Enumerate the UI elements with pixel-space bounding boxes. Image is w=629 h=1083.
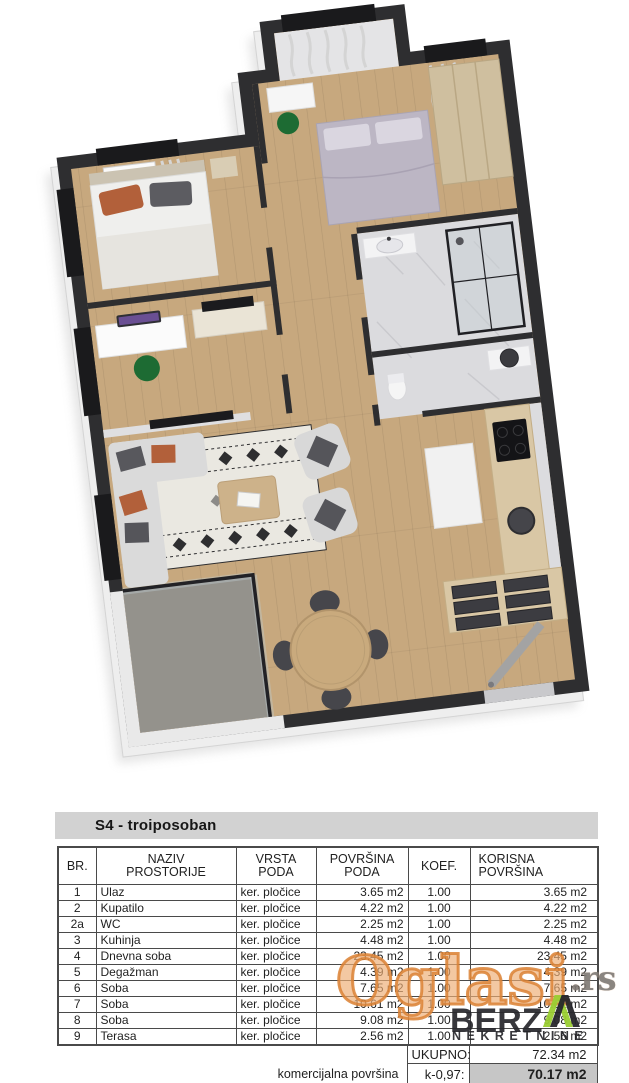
komercijalna-value: 70.17 m2 bbox=[469, 1064, 597, 1083]
cell-vrsta: ker. pločice bbox=[236, 1029, 316, 1046]
cell-korisna: 10.61 m2 bbox=[470, 997, 598, 1013]
cell-br: 3 bbox=[58, 933, 96, 949]
pillow-rust bbox=[151, 445, 175, 463]
header-vrsta: VRSTA PODA bbox=[236, 847, 316, 885]
cell-povrsina: 7.65 m2 bbox=[316, 981, 408, 997]
header-naziv: NAZIV PROSTORIJE bbox=[96, 847, 236, 885]
apartment bbox=[30, 0, 592, 764]
room-table: BR. NAZIV PROSTORIJE VRSTA PODA POVRŠINA… bbox=[57, 846, 599, 1046]
ukupno-label: UKUPNO: bbox=[407, 1046, 469, 1064]
cell-koef: 1.00 bbox=[408, 965, 470, 981]
table-row: 6 Soba ker. pločice 7.65 m2 1.00 7.65 m2 bbox=[58, 981, 598, 997]
table-row: 2a WC ker. pločice 2.25 m2 1.00 2.25 m2 bbox=[58, 917, 598, 933]
cell-koef: 1.00 bbox=[408, 1029, 470, 1046]
table-row: 2 Kupatilo ker. pločice 4.22 m2 1.00 4.2… bbox=[58, 901, 598, 917]
terrace-floor bbox=[123, 575, 270, 733]
cell-korisna: 4.39 m2 bbox=[470, 965, 598, 981]
cell-povrsina: 10.61 m2 bbox=[316, 997, 408, 1013]
cell-vrsta: ker. pločice bbox=[236, 917, 316, 933]
totals-table: UKUPNO: 72.34 m2 komercijalna površina k… bbox=[57, 1046, 598, 1083]
cell-br: 9 bbox=[58, 1029, 96, 1046]
cell-naziv: WC bbox=[96, 917, 236, 933]
komercijalna-label: komercijalna površina bbox=[57, 1064, 407, 1083]
cell-br: 1 bbox=[58, 885, 96, 901]
cell-povrsina: 4.48 m2 bbox=[316, 933, 408, 949]
cell-naziv: Soba bbox=[96, 1013, 236, 1029]
table-row: 1 Ulaz ker. pločice 3.65 m2 1.00 3.65 m2 bbox=[58, 885, 598, 901]
pillow-gray bbox=[125, 522, 150, 543]
table-row: 3 Kuhinja ker. pločice 4.48 m2 1.00 4.48… bbox=[58, 933, 598, 949]
cell-povrsina: 23.45 m2 bbox=[316, 949, 408, 965]
cell-naziv: Dnevna soba bbox=[96, 949, 236, 965]
cell-naziv: Ulaz bbox=[96, 885, 236, 901]
book bbox=[237, 492, 260, 508]
cell-naziv: Degažman bbox=[96, 965, 236, 981]
table-row: 5 Degažman ker. pločice 4.39 m2 1.00 4.3… bbox=[58, 965, 598, 981]
cell-naziv: Kuhinja bbox=[96, 933, 236, 949]
room-table-section: BR. NAZIV PROSTORIJE VRSTA PODA POVRŠINA… bbox=[57, 846, 597, 1083]
header-koef: KOEF. bbox=[408, 847, 470, 885]
cell-povrsina: 9.08 m2 bbox=[316, 1013, 408, 1029]
ukupno-row: UKUPNO: 72.34 m2 bbox=[57, 1046, 597, 1064]
koef-label: k-0,97: bbox=[407, 1064, 469, 1083]
table-row: 7 Soba ker. pločice 10.61 m2 1.00 10.61 … bbox=[58, 997, 598, 1013]
unit-title: S4 - troiposoban bbox=[55, 812, 598, 839]
kitchen-cabinet-white bbox=[425, 443, 482, 528]
cell-naziv: Kupatilo bbox=[96, 901, 236, 917]
cell-br: 7 bbox=[58, 997, 96, 1013]
cell-vrsta: ker. pločice bbox=[236, 997, 316, 1013]
cell-korisna: 3.65 m2 bbox=[470, 885, 598, 901]
cell-br: 2 bbox=[58, 901, 96, 917]
cell-koef: 1.00 bbox=[408, 917, 470, 933]
cell-koef: 1.00 bbox=[408, 1013, 470, 1029]
cell-vrsta: ker. pločice bbox=[236, 965, 316, 981]
ukupno-value: 72.34 m2 bbox=[469, 1046, 597, 1064]
cell-korisna: 23.45 m2 bbox=[470, 949, 598, 965]
cell-naziv: Soba bbox=[96, 981, 236, 997]
cell-vrsta: ker. pločice bbox=[236, 885, 316, 901]
cell-korisna: 2.25 m2 bbox=[470, 917, 598, 933]
cell-koef: 1.00 bbox=[408, 997, 470, 1013]
table-row: 8 Soba ker. pločice 9.08 m2 1.00 9.08 m2 bbox=[58, 1013, 598, 1029]
cell-br: 4 bbox=[58, 949, 96, 965]
pillow-gray bbox=[149, 181, 192, 207]
header-povrsina: POVRŠINA PODA bbox=[316, 847, 408, 885]
cell-korisna: 7.65 m2 bbox=[470, 981, 598, 997]
cell-naziv: Soba bbox=[96, 997, 236, 1013]
komercijalna-row: komercijalna površina k-0,97: 70.17 m2 bbox=[57, 1064, 597, 1083]
cell-koef: 1.00 bbox=[408, 901, 470, 917]
vanity-desk bbox=[267, 83, 316, 112]
table-row: 9 Terasa ker. pločice 2.56 m2 1.00 2.56 … bbox=[58, 1029, 598, 1046]
cell-povrsina: 2.56 m2 bbox=[316, 1029, 408, 1046]
cell-br: 8 bbox=[58, 1013, 96, 1029]
cell-korisna: 2.56 m2 bbox=[470, 1029, 598, 1046]
cell-br: 2a bbox=[58, 917, 96, 933]
cell-povrsina: 4.22 m2 bbox=[316, 901, 408, 917]
cell-vrsta: ker. pločice bbox=[236, 981, 316, 997]
wardrobe bbox=[428, 59, 513, 185]
cooktop bbox=[492, 418, 531, 462]
cell-vrsta: ker. pločice bbox=[236, 1013, 316, 1029]
floor-plan-render bbox=[0, 0, 629, 805]
cell-vrsta: ker. pločice bbox=[236, 901, 316, 917]
header-korisna: KORISNA POVRŠINA bbox=[470, 847, 598, 885]
cell-korisna: 4.22 m2 bbox=[470, 901, 598, 917]
table-row: 4 Dnevna soba ker. pločice 23.45 m2 1.00… bbox=[58, 949, 598, 965]
cell-naziv: Terasa bbox=[96, 1029, 236, 1046]
cell-koef: 1.00 bbox=[408, 949, 470, 965]
cell-vrsta: ker. pločice bbox=[236, 949, 316, 965]
cell-br: 6 bbox=[58, 981, 96, 997]
cell-vrsta: ker. pločice bbox=[236, 933, 316, 949]
cell-povrsina: 3.65 m2 bbox=[316, 885, 408, 901]
cell-povrsina: 4.39 m2 bbox=[316, 965, 408, 981]
cell-br: 5 bbox=[58, 965, 96, 981]
listing-page: S4 - troiposoban BR. NAZIV PROSTORIJE VR… bbox=[0, 0, 629, 1083]
table-header-row: BR. NAZIV PROSTORIJE VRSTA PODA POVRŠINA… bbox=[58, 847, 598, 885]
cell-koef: 1.00 bbox=[408, 885, 470, 901]
cell-korisna: 4.48 m2 bbox=[470, 933, 598, 949]
nightstand bbox=[210, 156, 238, 179]
cell-povrsina: 2.25 m2 bbox=[316, 917, 408, 933]
header-br: BR. bbox=[58, 847, 96, 885]
cell-koef: 1.00 bbox=[408, 933, 470, 949]
cell-koef: 1.00 bbox=[408, 981, 470, 997]
cell-korisna: 9.08 m2 bbox=[470, 1013, 598, 1029]
